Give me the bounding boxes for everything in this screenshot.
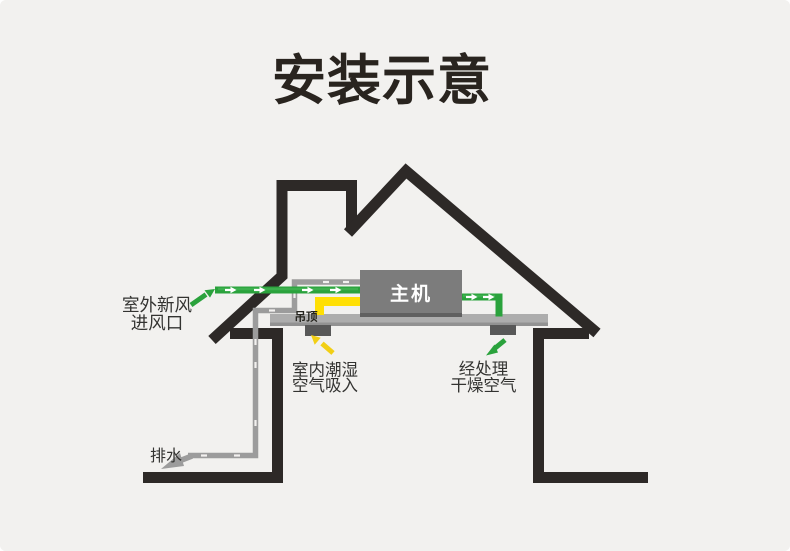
diagram-svg: 安装示意 xyxy=(0,0,790,551)
label-fresh-air-line1: 室外新风 xyxy=(122,296,192,316)
installation-diagram: 安装示意 xyxy=(0,0,790,551)
main-unit-shadow xyxy=(360,313,462,317)
page-title: 安装示意 xyxy=(272,49,492,112)
label-dry-line2: 干燥空气 xyxy=(451,376,517,395)
main-unit-label: 主机 xyxy=(390,283,432,305)
label-ceiling: 吊顶 xyxy=(295,310,318,324)
label-fresh-air-line2: 进风口 xyxy=(131,314,184,334)
vent-supply xyxy=(490,325,516,335)
label-drain: 排水 xyxy=(150,446,182,465)
vent-intake xyxy=(305,325,331,336)
label-humid-line2: 空气吸入 xyxy=(292,376,358,395)
main-unit: 主机 xyxy=(360,270,462,317)
